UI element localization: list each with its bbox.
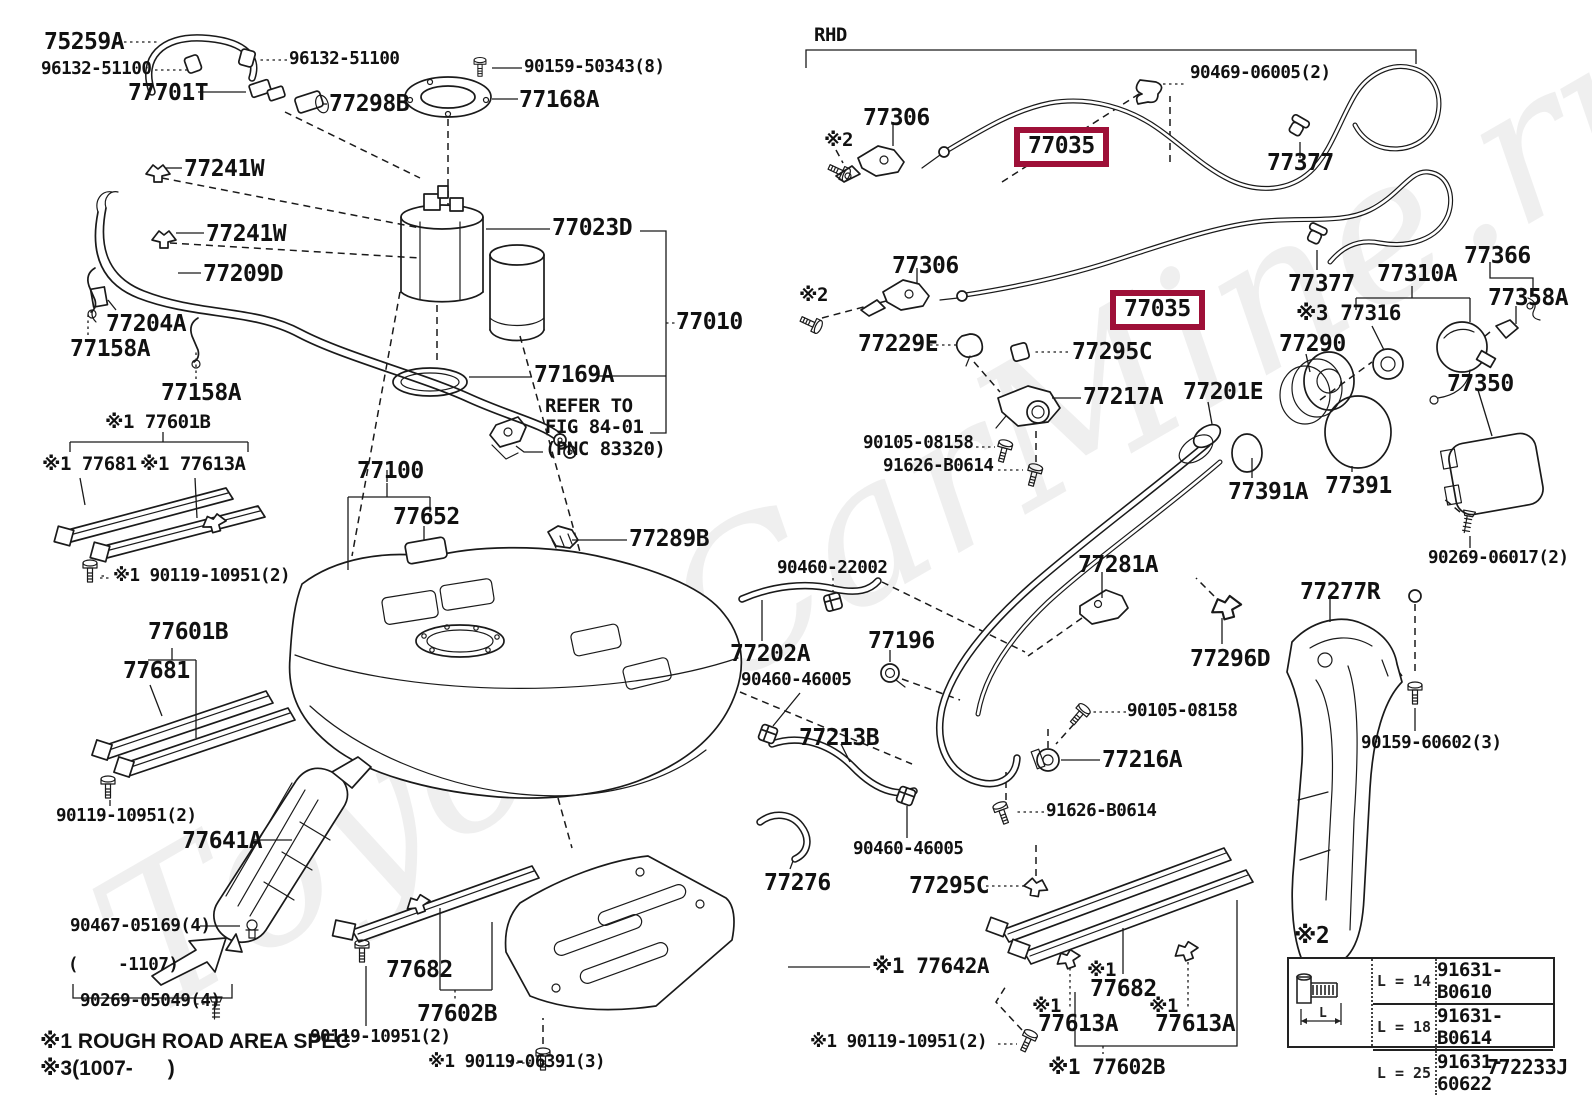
part-label: 77310A <box>1377 262 1457 288</box>
rhd-label: RHD <box>814 25 847 46</box>
part-label: ※1 77642A <box>872 955 989 979</box>
part-label: ※1 77601B <box>105 412 210 433</box>
bolt-table-rows: L = 14 91631-B0610 L = 18 91631-B0614 L … <box>1373 959 1553 1046</box>
part-label: 77241W <box>206 222 286 248</box>
part-label: 90105-08158 <box>1127 702 1237 722</box>
part-label: 77281A <box>1078 553 1158 579</box>
part-label: 91626-B0614 <box>1046 802 1156 822</box>
highlighted-part-label: 77035 <box>1014 127 1109 167</box>
part-label: 90119-10951(2) <box>310 1028 451 1048</box>
bolt-length-cell: L = 18 <box>1373 1005 1437 1049</box>
note-label: ※1 ROUGH ROAD AREA SPEC <box>40 1030 351 1054</box>
part-label: 77213B <box>799 726 879 752</box>
part-label: ※2 <box>1294 924 1329 950</box>
bolt-icon: L <box>1289 959 1373 1046</box>
part-label: 77295C <box>1072 340 1152 366</box>
part-label: 90105-08158 <box>863 434 973 454</box>
part-label: 77168A <box>519 88 599 114</box>
part-label: 90460-46005 <box>741 671 851 691</box>
part-label: 77204A <box>106 312 186 338</box>
part-label: 77196 <box>868 629 935 655</box>
part-label: 77241W <box>184 157 264 183</box>
part-label: 96132-51100 <box>41 60 151 80</box>
bolt-part-cell: 91631-60622 <box>1437 1051 1553 1095</box>
part-label: 96132-51100 <box>289 50 399 70</box>
part-label: 77377 <box>1288 272 1355 298</box>
part-label: 77306 <box>892 254 959 280</box>
part-label: 90460-22002 <box>777 559 887 579</box>
bolt-length-table: L L = 14 91631-B0610 L = 18 91631-B0614 … <box>1287 957 1555 1048</box>
part-label: 77209D <box>203 262 283 288</box>
part-label: ※1 90119-06391(3) <box>428 1053 605 1073</box>
part-label: ( -1107) <box>68 956 178 976</box>
part-label: 90159-60602(3) <box>1361 734 1502 754</box>
part-label: ※1 90119-10951(2) <box>810 1033 987 1053</box>
part-label: 77601B <box>148 620 228 646</box>
part-label: 77306 <box>863 106 930 132</box>
part-label: 77295C <box>909 874 989 900</box>
part-label: 77169A <box>534 363 614 389</box>
part-label: 77391A <box>1228 480 1308 506</box>
part-label: 77276 <box>764 871 831 897</box>
part-label: 77277R <box>1300 580 1380 606</box>
part-label: 77289B <box>629 527 709 553</box>
part-label: 77296D <box>1190 647 1270 673</box>
part-label: 77023D <box>552 216 632 242</box>
part-label: 77201E <box>1183 380 1263 406</box>
part-label: 77158A <box>70 337 150 363</box>
part-label: 77298B <box>329 92 409 118</box>
part-label: ※2 <box>799 285 828 306</box>
part-label: 77229E <box>858 332 938 358</box>
part-label: ※3 77316 <box>1296 302 1401 326</box>
part-label: 75259A <box>44 30 124 56</box>
part-label: 77010 <box>676 310 743 336</box>
bolt-length-cell: L = 25 <box>1373 1051 1437 1095</box>
part-label: 77202A <box>730 642 810 668</box>
part-label: REFER TO FIG 84-01 (PNC 83320) <box>545 396 665 460</box>
part-label: 90467-05169(4) <box>70 917 211 937</box>
part-label: ※2 <box>824 130 853 151</box>
bolt-length-cell: L = 14 <box>1373 959 1437 1003</box>
part-label: 77158A <box>161 381 241 407</box>
table-row: L = 14 91631-B0610 <box>1373 959 1553 1005</box>
parts-diagram-page: ToyotaCarMine.ru <box>0 0 1592 1099</box>
part-label: 90269-06017(2) <box>1428 549 1569 569</box>
part-label: 77682 <box>386 958 453 984</box>
svg-text:L: L <box>1319 1006 1327 1021</box>
part-label: ※1 77613A <box>140 454 245 475</box>
part-label: 77100 <box>357 459 424 485</box>
part-label: 77216A <box>1102 748 1182 774</box>
bolt-part-cell: 91631-B0614 <box>1437 1005 1553 1049</box>
part-label: 91626-B0614 <box>883 457 993 477</box>
part-label: 77613A <box>1155 1012 1235 1038</box>
part-label: 90469-06005(2) <box>1190 64 1331 84</box>
part-label: 77682 <box>1090 977 1157 1003</box>
table-row: L = 25 91631-60622 <box>1373 1051 1553 1095</box>
part-label: 77613A <box>1038 1012 1118 1038</box>
labels-layer: 75259A96132-5110096132-5110077701T77298B… <box>0 0 1592 1099</box>
part-label: ※1 77681 <box>42 454 137 475</box>
part-label: 77290 <box>1279 332 1346 358</box>
part-label: 77681 <box>123 659 190 685</box>
part-label: 77391 <box>1325 474 1392 500</box>
part-label: 77377 <box>1267 151 1334 177</box>
table-row: L = 18 91631-B0614 <box>1373 1005 1553 1051</box>
part-label: 77602B <box>417 1002 497 1028</box>
part-label: 77217A <box>1083 385 1163 411</box>
part-label: 77358A <box>1488 286 1568 312</box>
part-label: 90269-05049(4) <box>80 992 221 1012</box>
part-label: 77366 <box>1464 244 1531 270</box>
part-label: 77350 <box>1447 372 1514 398</box>
highlighted-part-label: 77035 <box>1110 290 1205 330</box>
part-label: 77652 <box>393 505 460 531</box>
bolt-part-cell: 91631-B0610 <box>1437 959 1553 1003</box>
part-label: 90119-10951(2) <box>56 807 197 827</box>
note-label: ※3(1007- ) <box>40 1057 175 1081</box>
part-label: 77701T <box>128 81 208 107</box>
part-label: ※1 90119-10951(2) <box>113 567 290 587</box>
part-label: ※1 77602B <box>1048 1056 1165 1080</box>
part-label: 90460-46005 <box>853 840 963 860</box>
part-label: 77641A <box>182 829 262 855</box>
part-label: 90159-50343(8) <box>524 58 665 78</box>
